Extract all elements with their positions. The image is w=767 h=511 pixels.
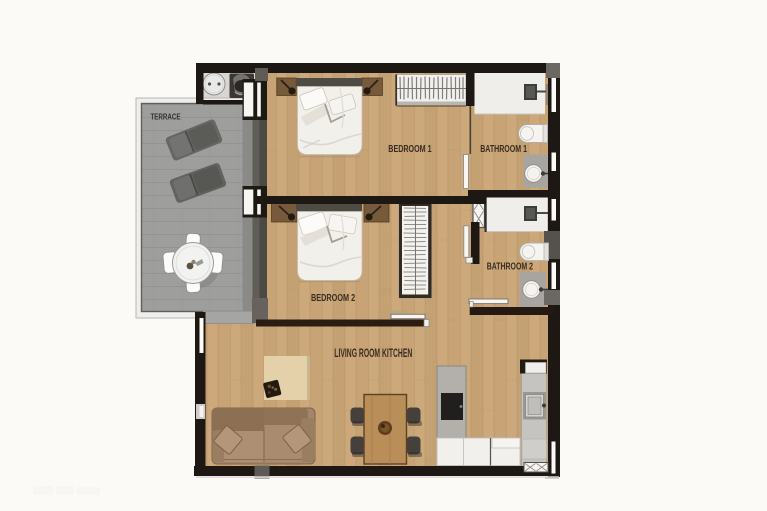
svg-text:TERRACE: TERRACE [151, 111, 181, 121]
svg-text:BATHROOM 2: BATHROOM 2 [487, 261, 534, 272]
svg-text:LIVING ROOM KITCHEN: LIVING ROOM KITCHEN [334, 346, 412, 360]
svg-text:BATHROOM 1: BATHROOM 1 [480, 144, 527, 155]
svg-text:BEDROOM 2: BEDROOM 2 [311, 293, 355, 304]
svg-text:BEDROOM 1: BEDROOM 1 [388, 144, 432, 155]
